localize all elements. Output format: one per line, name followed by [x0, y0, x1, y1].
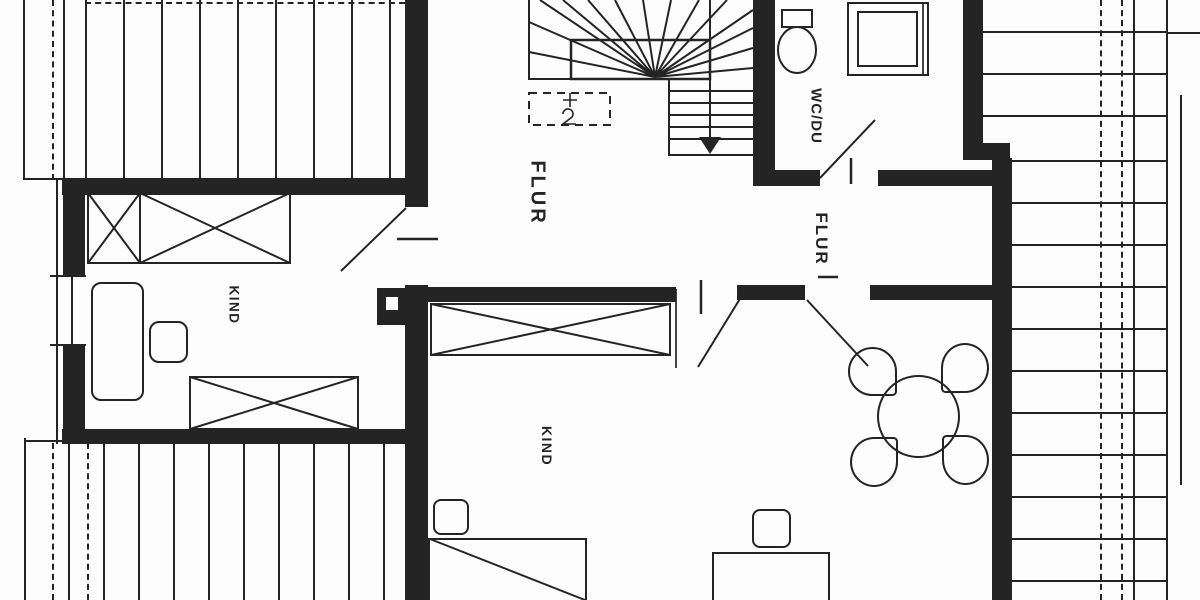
dashed-roof-window [529, 93, 610, 125]
toilet [778, 10, 816, 73]
staircase [529, 0, 753, 155]
desk [713, 553, 829, 600]
desk [92, 283, 143, 400]
shower [848, 3, 928, 75]
dining-chair [850, 437, 898, 487]
dining-chair [941, 343, 989, 393]
room-label-wc-du: WC/DU [808, 88, 825, 144]
dining-chair [848, 347, 897, 396]
bed [88, 193, 290, 263]
wardrobe [431, 304, 670, 355]
dining-chair [942, 435, 989, 485]
door-child-bottom [676, 280, 746, 368]
bed [429, 539, 586, 600]
chair [434, 500, 468, 534]
room-label-kind-bottom: KIND [539, 426, 555, 466]
floor-plan: FLUR FLUR WC/DU KIND KIND [0, 0, 1200, 600]
door-bathroom [820, 120, 875, 184]
chair [150, 322, 187, 362]
plan-linework [0, 0, 1200, 600]
door-child-left [341, 208, 438, 271]
room-label-flur-right: FLUR [811, 212, 831, 265]
room-label-flur-center: FLUR [526, 160, 549, 225]
room-label-kind-left: KIND [227, 286, 242, 325]
chair [753, 510, 790, 547]
stair-direction-arrow [699, 0, 721, 154]
bed [190, 377, 358, 429]
